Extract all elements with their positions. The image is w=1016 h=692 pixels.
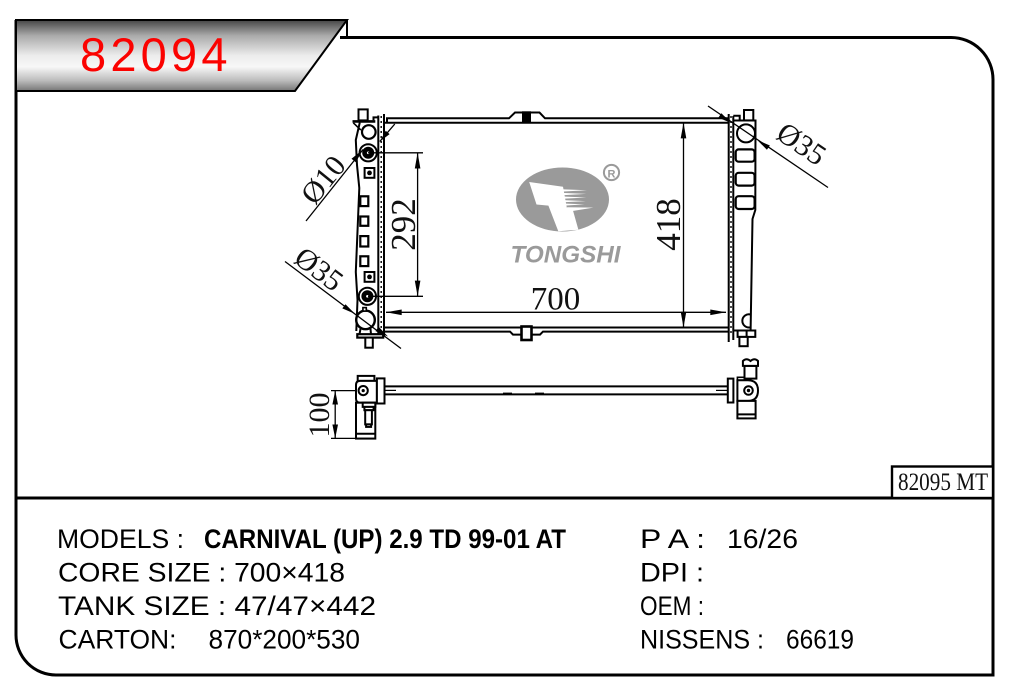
svg-text:82095 MT: 82095 MT xyxy=(898,469,988,496)
svg-text:82094: 82094 xyxy=(80,28,232,81)
svg-text:66619: 66619 xyxy=(786,625,854,655)
svg-text:292: 292 xyxy=(384,198,423,251)
svg-text:P A :: P A : xyxy=(640,524,705,554)
svg-text:870*200*530: 870*200*530 xyxy=(209,625,361,655)
svg-text:CARNIVAL (UP) 2.9 TD 99-01 AT: CARNIVAL (UP) 2.9 TD 99-01 AT xyxy=(204,524,566,554)
svg-text:Ø35: Ø35 xyxy=(771,116,832,172)
svg-text:DPI :: DPI : xyxy=(640,558,704,588)
svg-text:TONGSHI: TONGSHI xyxy=(511,242,622,269)
svg-text:Ø10: Ø10 xyxy=(295,150,353,211)
svg-text:CORE SIZE : 700×418: CORE SIZE : 700×418 xyxy=(58,558,345,588)
svg-text:16/26: 16/26 xyxy=(727,524,798,554)
svg-text:Ø35: Ø35 xyxy=(288,241,349,298)
svg-text:OEM :: OEM : xyxy=(640,591,704,621)
svg-text:100: 100 xyxy=(303,393,336,438)
svg-text:R: R xyxy=(608,169,616,181)
svg-text:700: 700 xyxy=(531,282,581,318)
svg-text:NISSENS :: NISSENS : xyxy=(640,625,764,655)
svg-text:418: 418 xyxy=(649,198,688,251)
svg-text:CARTON:: CARTON: xyxy=(59,625,177,655)
svg-text:MODELS :: MODELS : xyxy=(57,524,184,554)
svg-text:TANK SIZE : 47/47×442: TANK SIZE : 47/47×442 xyxy=(58,591,376,621)
